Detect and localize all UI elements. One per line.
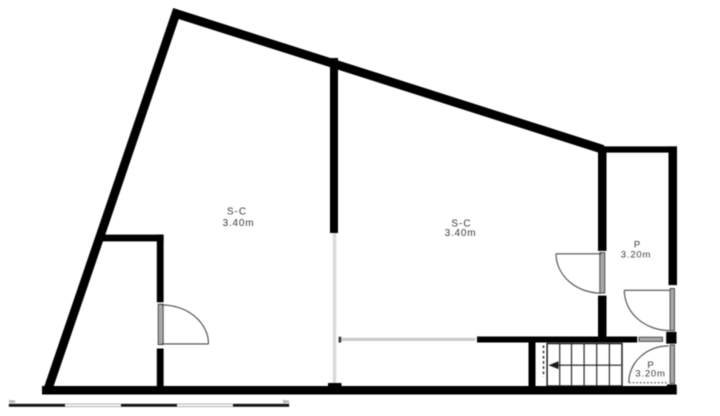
svg-text:0m: 0m	[9, 399, 15, 404]
svg-text:3.20m: 3.20m	[621, 250, 651, 261]
svg-text:3.40m: 3.40m	[223, 218, 255, 229]
svg-text:S-C: S-C	[227, 207, 247, 218]
svg-text:5m: 5m	[283, 399, 289, 404]
svg-text:3.40m: 3.40m	[445, 228, 477, 239]
svg-text:3.20m: 3.20m	[635, 368, 665, 379]
